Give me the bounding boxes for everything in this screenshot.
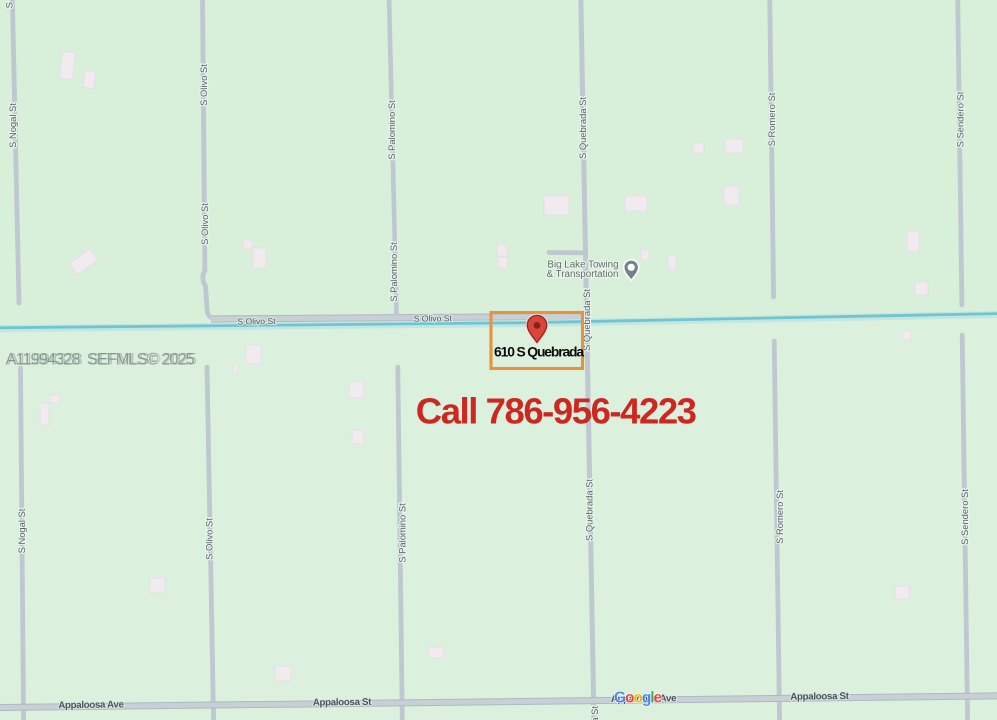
svg-text:S Nogal St: S Nogal St [16, 508, 27, 553]
svg-text:S Palomino St: S Palomino St [386, 100, 397, 160]
svg-text:S Olivo St: S Olivo St [199, 203, 210, 245]
svg-text:Appaloosa St: Appaloosa St [790, 691, 850, 703]
svg-text:S Olivo St: S Olivo St [414, 313, 453, 323]
svg-text:610 S Quebrada: 610 S Quebrada [494, 344, 584, 360]
svg-text:S Sendero St: S Sendero St [959, 489, 970, 545]
svg-text:S Quebrada St: S Quebrada St [589, 706, 600, 720]
svg-text:S Quebrada St: S Quebrada St [584, 479, 595, 541]
svg-text:& Transportation: & Transportation [547, 269, 619, 280]
svg-text:S Nogal St: S Nogal St [4, 0, 15, 8]
svg-text:Appaloosa St: Appaloosa St [313, 697, 373, 709]
svg-text:S Romero St: S Romero St [766, 92, 777, 146]
svg-text:S Romero St: S Romero St [774, 490, 785, 544]
svg-text:Call 786-956-4223: Call 786-956-4223 [416, 391, 696, 432]
svg-text:S Olivo St: S Olivo St [198, 64, 209, 106]
svg-text:S Nogal St: S Nogal St [7, 103, 18, 148]
svg-text:S Sendero St: S Sendero St [954, 91, 965, 147]
svg-text:S Olivo St: S Olivo St [204, 518, 215, 560]
svg-text:A11994328 SEFMLS© 2025: A11994328 SEFMLS© 2025 [6, 350, 195, 368]
svg-text:S Olivo St: S Olivo St [237, 316, 276, 326]
svg-text:Appaloosa Ave: Appaloosa Ave [58, 699, 124, 711]
svg-text:Google: Google [614, 689, 663, 706]
svg-text:S Quebrada St: S Quebrada St [577, 97, 588, 159]
svg-text:S Palomino St: S Palomino St [397, 503, 408, 563]
svg-text:S Palomino St: S Palomino St [388, 242, 399, 302]
